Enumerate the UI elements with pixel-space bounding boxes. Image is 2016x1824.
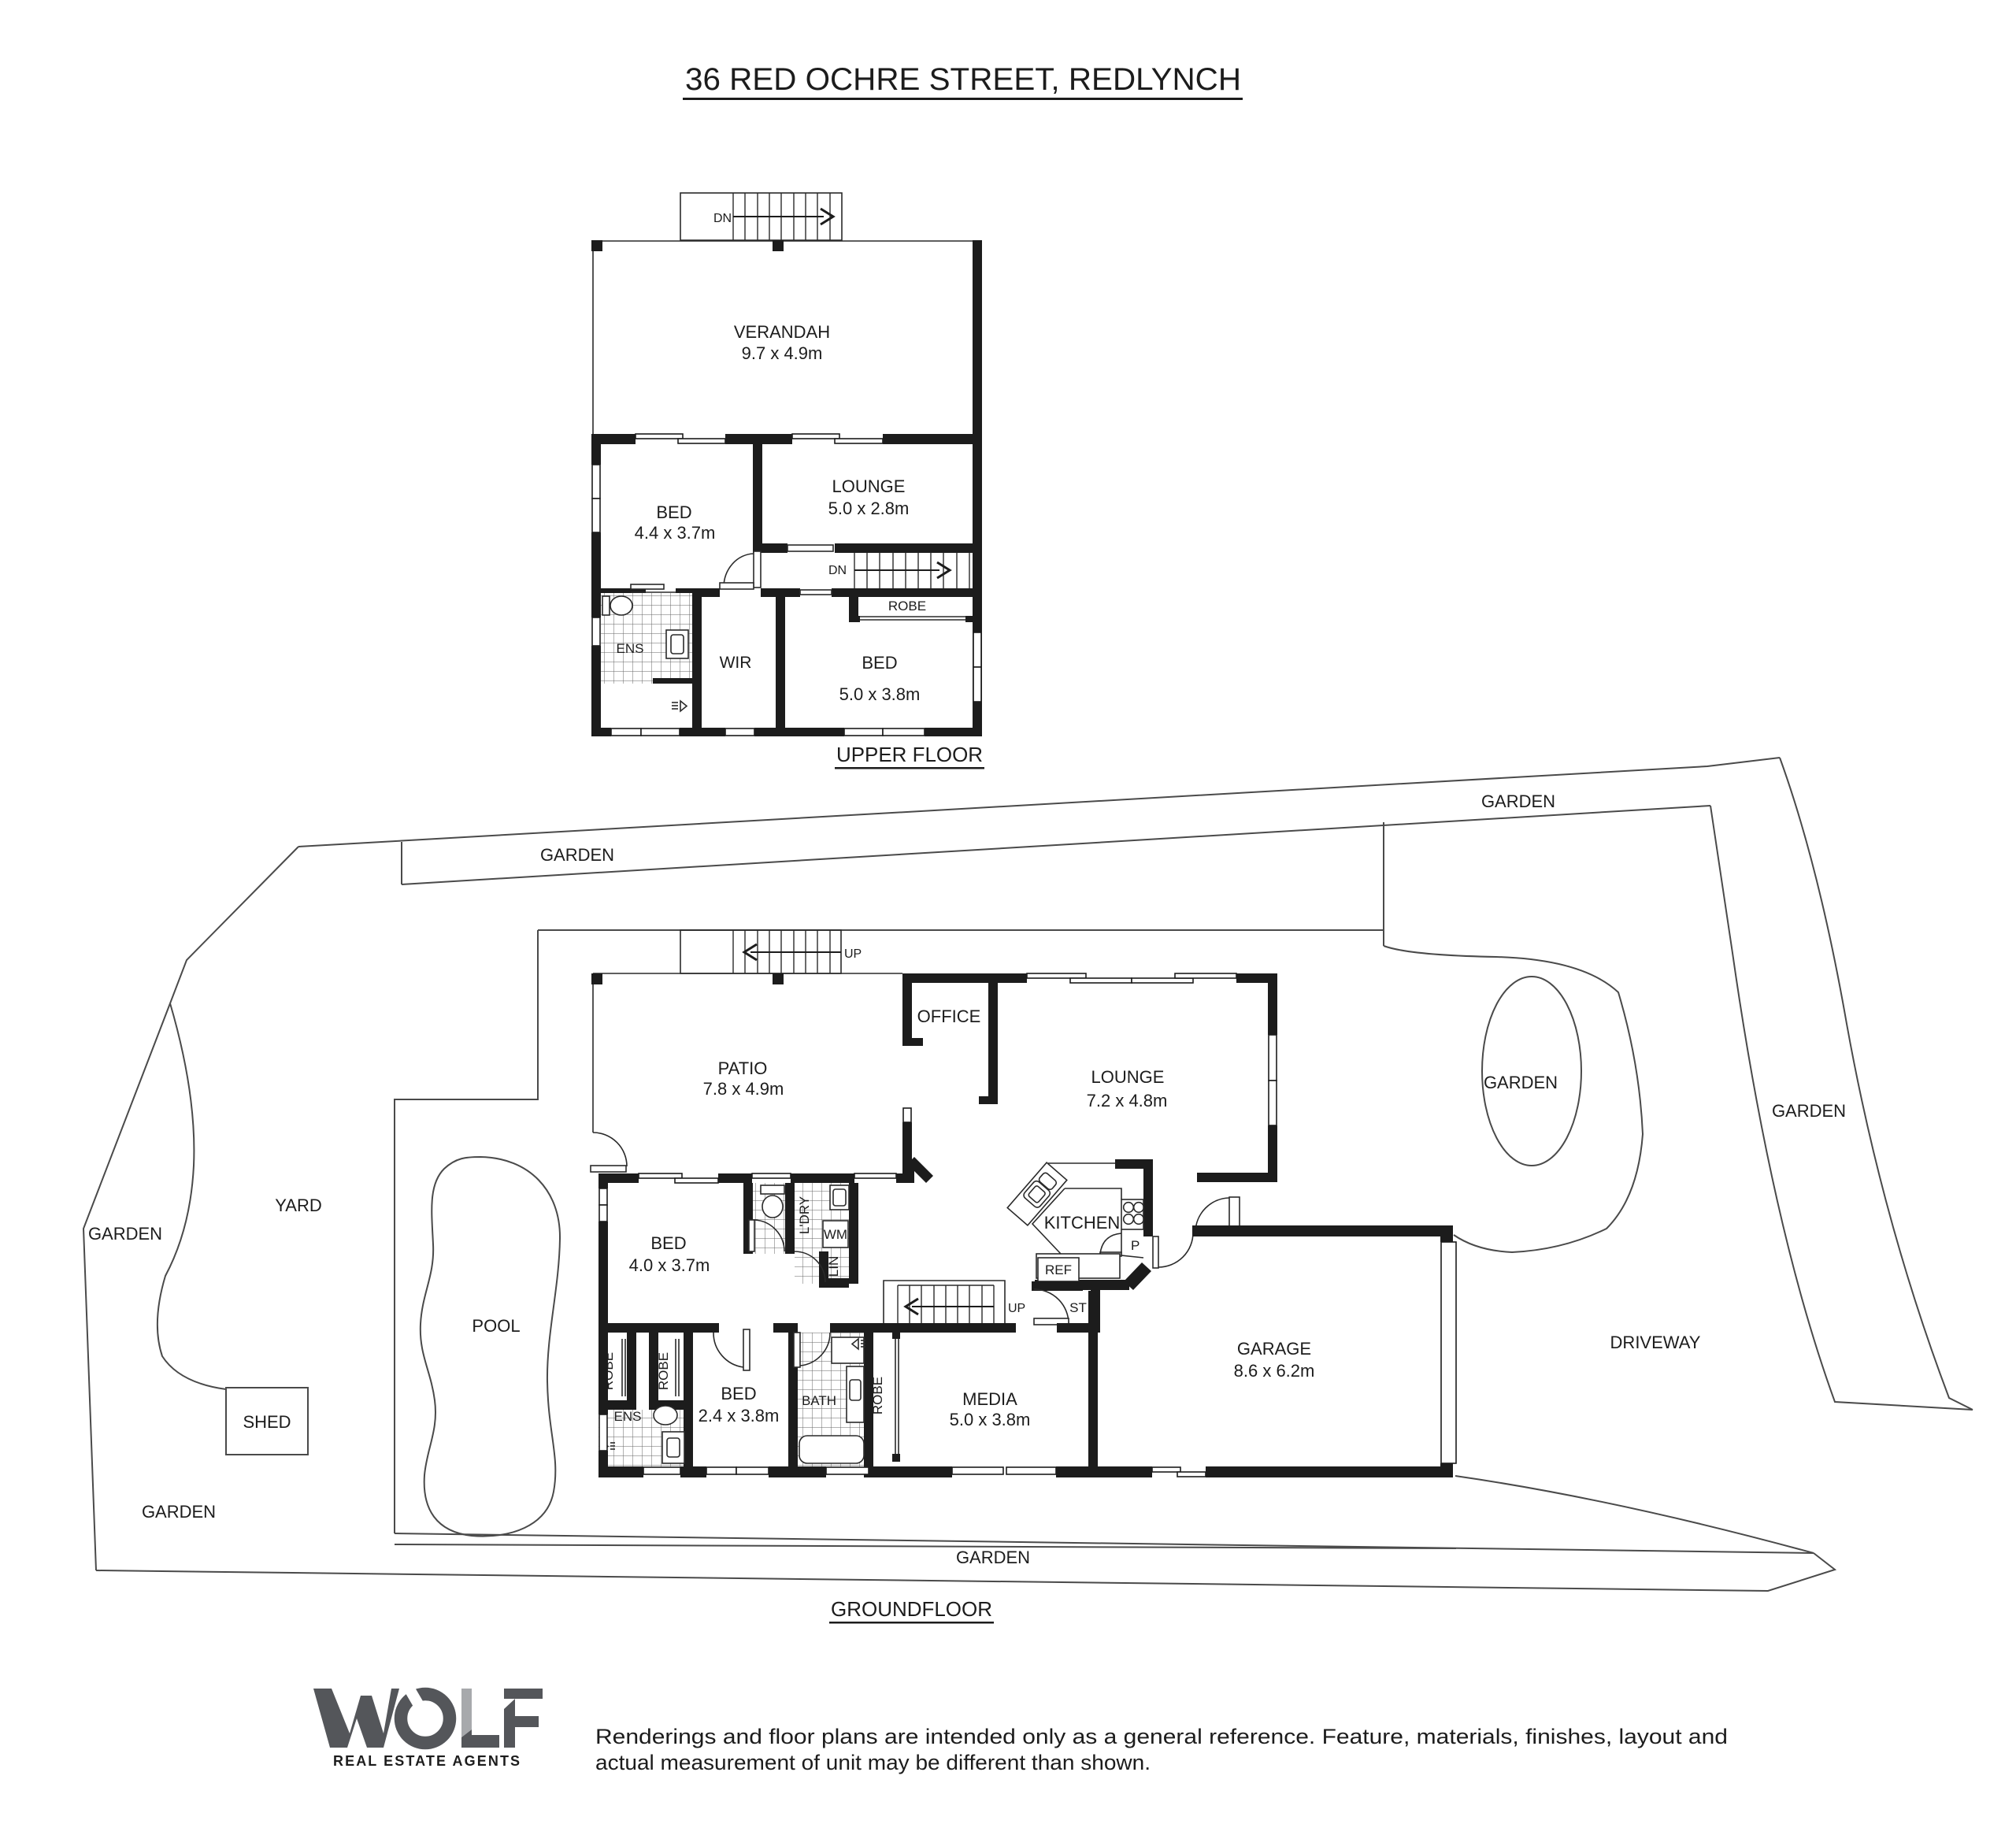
svg-text:L'DRY: L'DRY: [797, 1196, 812, 1234]
svg-text:GARDEN: GARDEN: [142, 1502, 216, 1522]
svg-text:GARDEN: GARDEN: [1484, 1073, 1558, 1092]
svg-text:BATH: BATH: [802, 1393, 836, 1408]
svg-text:GARDEN: GARDEN: [956, 1548, 1030, 1567]
svg-text:VERANDAH: VERANDAH: [734, 322, 830, 342]
svg-text:8.6 x 6.2m: 8.6 x 6.2m: [1234, 1361, 1315, 1381]
svg-text:5.0 x 2.8m: 5.0 x 2.8m: [828, 499, 910, 518]
svg-text:KITCHEN: KITCHEN: [1044, 1213, 1121, 1233]
svg-text:4.0 x 3.7m: 4.0 x 3.7m: [629, 1255, 710, 1275]
svg-text:SHED: SHED: [243, 1412, 291, 1432]
svg-text:PATIO: PATIO: [718, 1058, 768, 1078]
svg-text:5.0 x 3.8m: 5.0 x 3.8m: [950, 1410, 1031, 1429]
svg-text:LIN: LIN: [826, 1256, 841, 1277]
svg-text:OFFICE: OFFICE: [917, 1007, 981, 1026]
svg-text:ENS: ENS: [617, 641, 644, 656]
svg-text:BED: BED: [862, 653, 897, 673]
svg-text:YARD: YARD: [275, 1196, 322, 1215]
svg-text:POOL: POOL: [472, 1316, 520, 1336]
svg-text:LOUNGE: LOUNGE: [832, 476, 906, 496]
svg-text:REF: REF: [1045, 1262, 1072, 1277]
svg-text:ENS: ENS: [614, 1409, 642, 1424]
svg-text:36 RED OCHRE STREET, REDLYNCH: 36 RED OCHRE STREET, REDLYNCH: [685, 62, 1241, 97]
svg-text:ROBE: ROBE: [656, 1352, 671, 1390]
svg-text:ROBE: ROBE: [888, 599, 926, 614]
svg-text:GARAGE: GARAGE: [1237, 1339, 1311, 1359]
svg-text:ROBE: ROBE: [870, 1377, 885, 1414]
svg-text:WIR: WIR: [720, 654, 752, 672]
svg-text:UP: UP: [1008, 1302, 1025, 1315]
svg-text:GARDEN: GARDEN: [540, 845, 614, 865]
svg-text:UPPER FLOOR: UPPER FLOOR: [836, 743, 983, 766]
svg-text:ST: ST: [1069, 1300, 1087, 1315]
svg-text:LOUNGE: LOUNGE: [1091, 1067, 1165, 1087]
svg-text:UP: UP: [844, 947, 862, 961]
svg-text:DN: DN: [828, 564, 847, 577]
svg-text:P: P: [1131, 1238, 1140, 1253]
svg-text:GROUNDFLOOR: GROUNDFLOOR: [831, 1597, 992, 1621]
svg-text:GARDEN: GARDEN: [1772, 1101, 1846, 1121]
svg-text:DRIVEWAY: DRIVEWAY: [1610, 1333, 1701, 1352]
svg-text:MEDIA: MEDIA: [962, 1389, 1017, 1409]
svg-text:BED: BED: [650, 1233, 686, 1253]
svg-text:BED: BED: [656, 502, 691, 522]
svg-text:BED: BED: [721, 1384, 756, 1403]
svg-text:DN: DN: [713, 212, 732, 225]
svg-text:4.4 x 3.7m: 4.4 x 3.7m: [635, 523, 716, 543]
svg-text:actual measurement of unit may: actual measurement of unit may be differ…: [595, 1751, 1151, 1774]
svg-text:Renderings and floor plans are: Renderings and floor plans are intended …: [595, 1725, 1728, 1748]
svg-text:WM: WM: [824, 1227, 847, 1242]
svg-text:GARDEN: GARDEN: [88, 1224, 162, 1244]
svg-text:2.4 x 3.8m: 2.4 x 3.8m: [699, 1406, 780, 1425]
svg-text:9.7 x 4.9m: 9.7 x 4.9m: [742, 343, 823, 363]
svg-text:7.8 x 4.9m: 7.8 x 4.9m: [703, 1079, 784, 1099]
svg-text:REAL ESTATE AGENTS: REAL ESTATE AGENTS: [333, 1753, 521, 1769]
svg-text:GARDEN: GARDEN: [1481, 792, 1555, 811]
svg-text:5.0 x 3.8m: 5.0 x 3.8m: [839, 684, 921, 704]
svg-text:7.2 x 4.8m: 7.2 x 4.8m: [1087, 1091, 1168, 1110]
